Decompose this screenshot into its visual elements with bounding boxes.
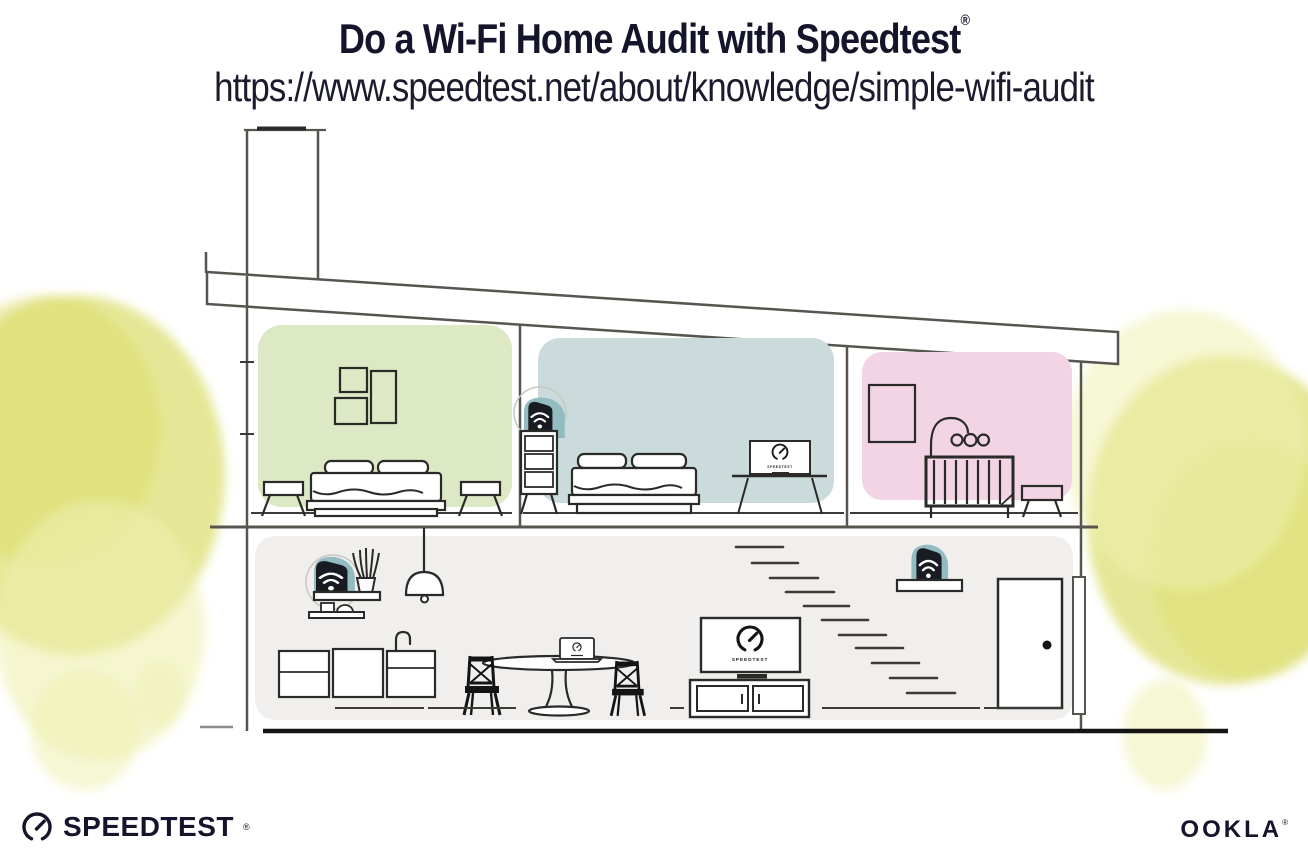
tv-screen-label: SPEEDTEST bbox=[767, 465, 793, 469]
wifi-router-icon bbox=[316, 561, 348, 595]
wifi-mesh-stairs-icon bbox=[916, 548, 941, 583]
laptop bbox=[553, 638, 601, 662]
speedtest-wordmark: SPEEDTEST bbox=[63, 811, 234, 843]
speedtest-gauge-icon bbox=[20, 810, 54, 844]
lower-shelf bbox=[309, 612, 364, 618]
registered-mark: ® bbox=[243, 822, 250, 832]
bed bbox=[569, 454, 699, 513]
ookla-logo: OOKLA® bbox=[1180, 816, 1288, 844]
media-console bbox=[690, 680, 809, 717]
ookla-wordmark: OOKLA bbox=[1180, 816, 1282, 843]
front-door bbox=[998, 579, 1062, 708]
wall-shelf bbox=[314, 592, 380, 600]
tv-living-room: SPEEDTEST bbox=[701, 618, 800, 679]
tv-screen-label: SPEEDTEST bbox=[732, 657, 769, 663]
chimney bbox=[244, 129, 326, 282]
home-illustration: SPEEDTEST bbox=[0, 0, 1308, 861]
door-knob bbox=[1043, 641, 1052, 650]
sidelight-panel bbox=[1073, 577, 1085, 714]
tree-right bbox=[1065, 310, 1308, 790]
dresser bbox=[521, 431, 557, 514]
speedtest-logo: SPEEDTEST® bbox=[20, 810, 250, 844]
wifi-mesh-bedroom-icon bbox=[528, 402, 552, 433]
stair-shelf bbox=[897, 580, 962, 591]
tree-left bbox=[0, 295, 225, 790]
registered-mark: ® bbox=[1282, 818, 1288, 827]
